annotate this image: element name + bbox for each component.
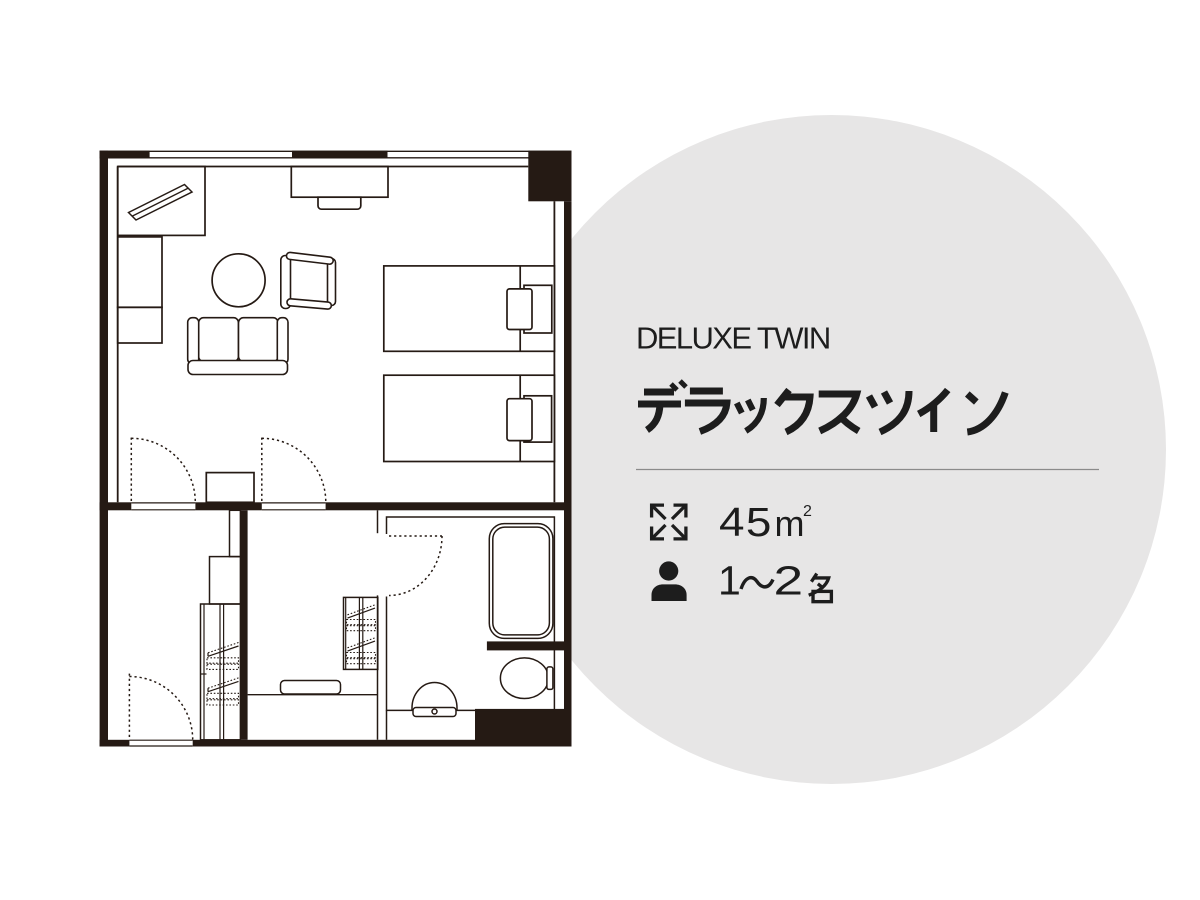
svg-text:2: 2: [774, 558, 804, 604]
svg-text:2: 2: [803, 503, 812, 520]
svg-text:m: m: [775, 503, 805, 544]
svg-text:45: 45: [719, 500, 773, 545]
svg-text:1: 1: [718, 558, 741, 604]
svg-text:DELUXE TWIN: DELUXE TWIN: [636, 321, 830, 356]
